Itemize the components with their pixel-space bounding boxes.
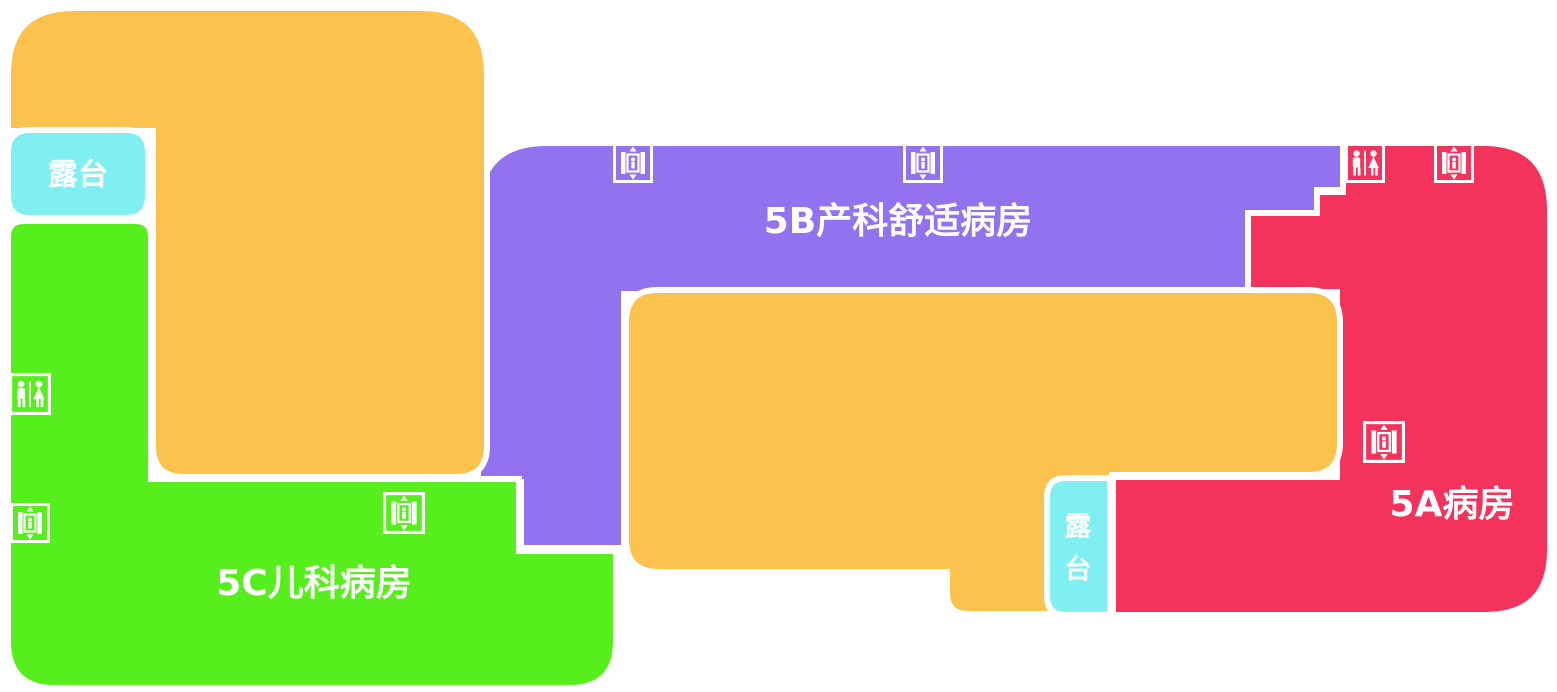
terrace-lower-label-char2: 台 [1065,554,1092,586]
region-terrace-lower[interactable] [1047,478,1110,615]
ward-5b-label: 5B产科舒适病房 [764,201,1033,242]
terrace-upper-label: 露台 [48,158,108,193]
floor-map-canvas: 5B产科舒适病房 5C儿科病房 5A病房 露台 露 台 [0,0,1557,692]
ward-5c-label: 5C儿科病房 [216,563,411,604]
floor-map: 5B产科舒适病房 5C儿科病房 5A病房 露台 露 台 [0,0,1557,692]
terrace-lower-label-char1: 露 [1065,512,1093,543]
ward-5a-label: 5A病房 [1390,484,1515,525]
